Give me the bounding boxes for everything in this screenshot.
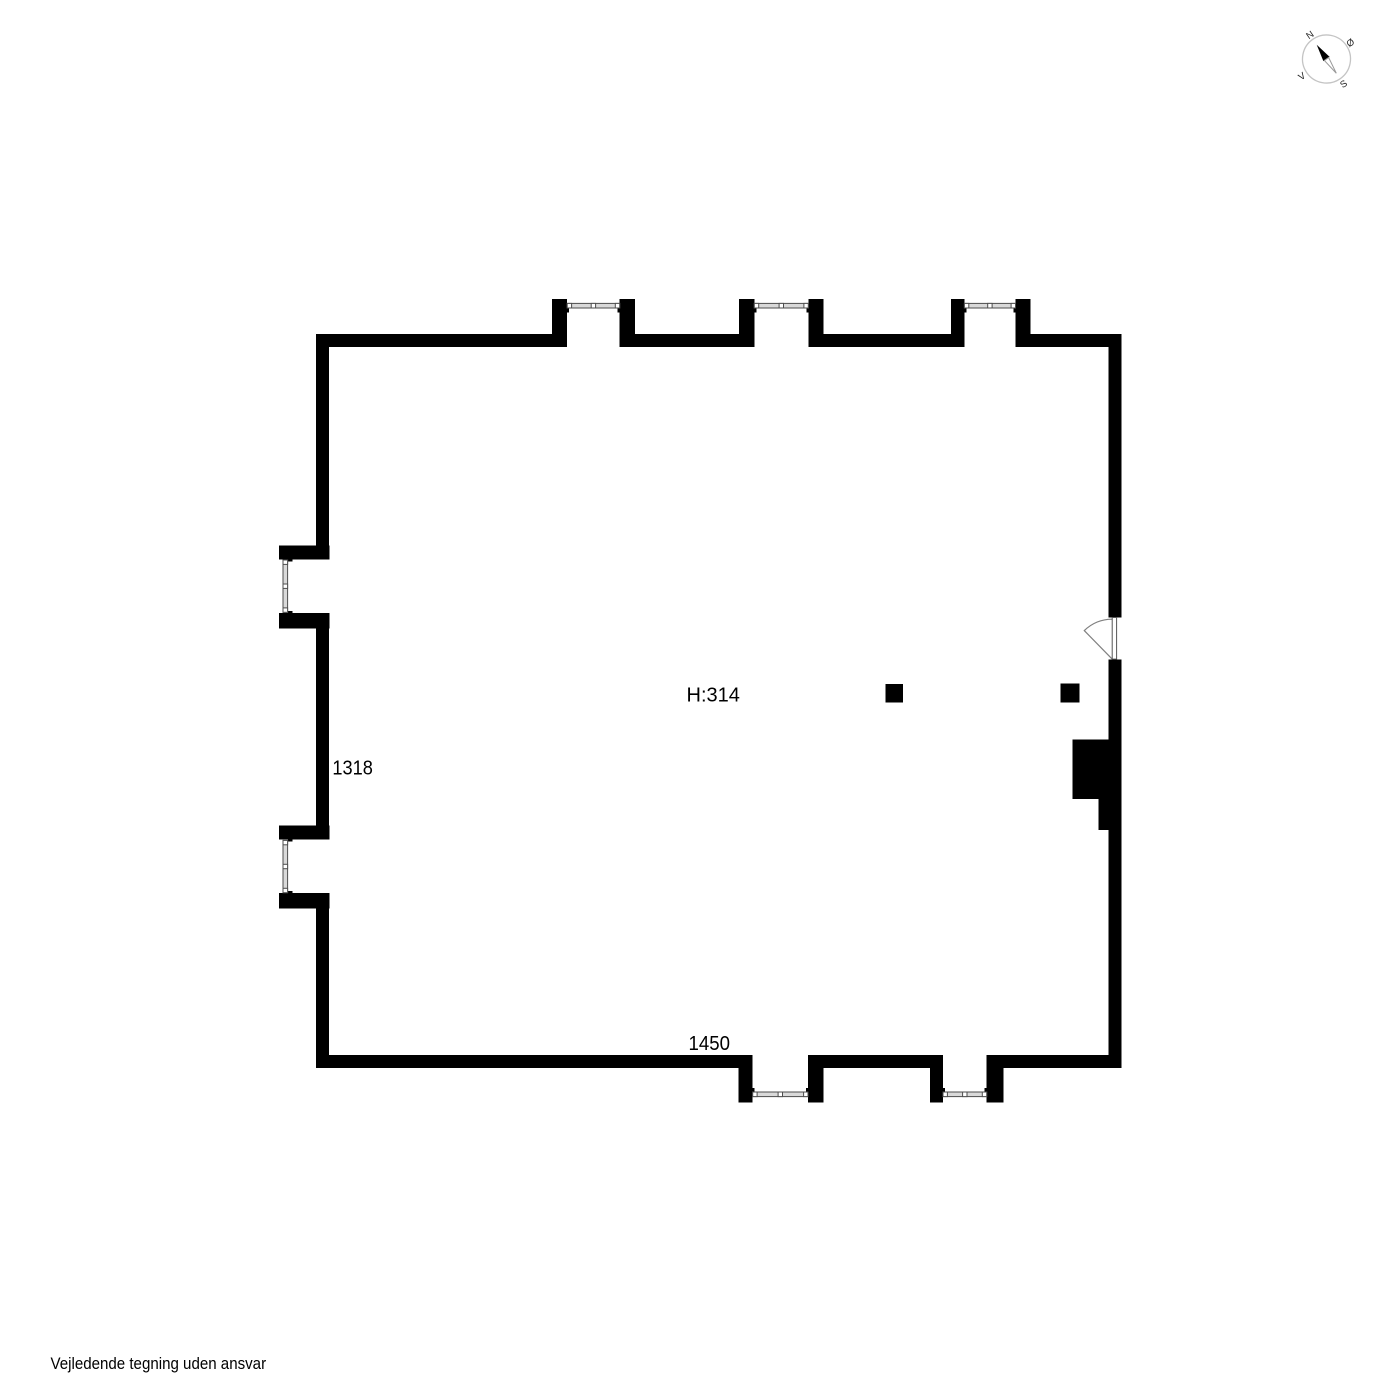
svg-text:1318: 1318 bbox=[332, 757, 373, 779]
svg-text:Vejledende tegning uden ansvar: Vejledende tegning uden ansvar bbox=[51, 1355, 267, 1373]
svg-text:H:314: H:314 bbox=[687, 684, 740, 706]
svg-text:1450: 1450 bbox=[689, 1033, 731, 1055]
